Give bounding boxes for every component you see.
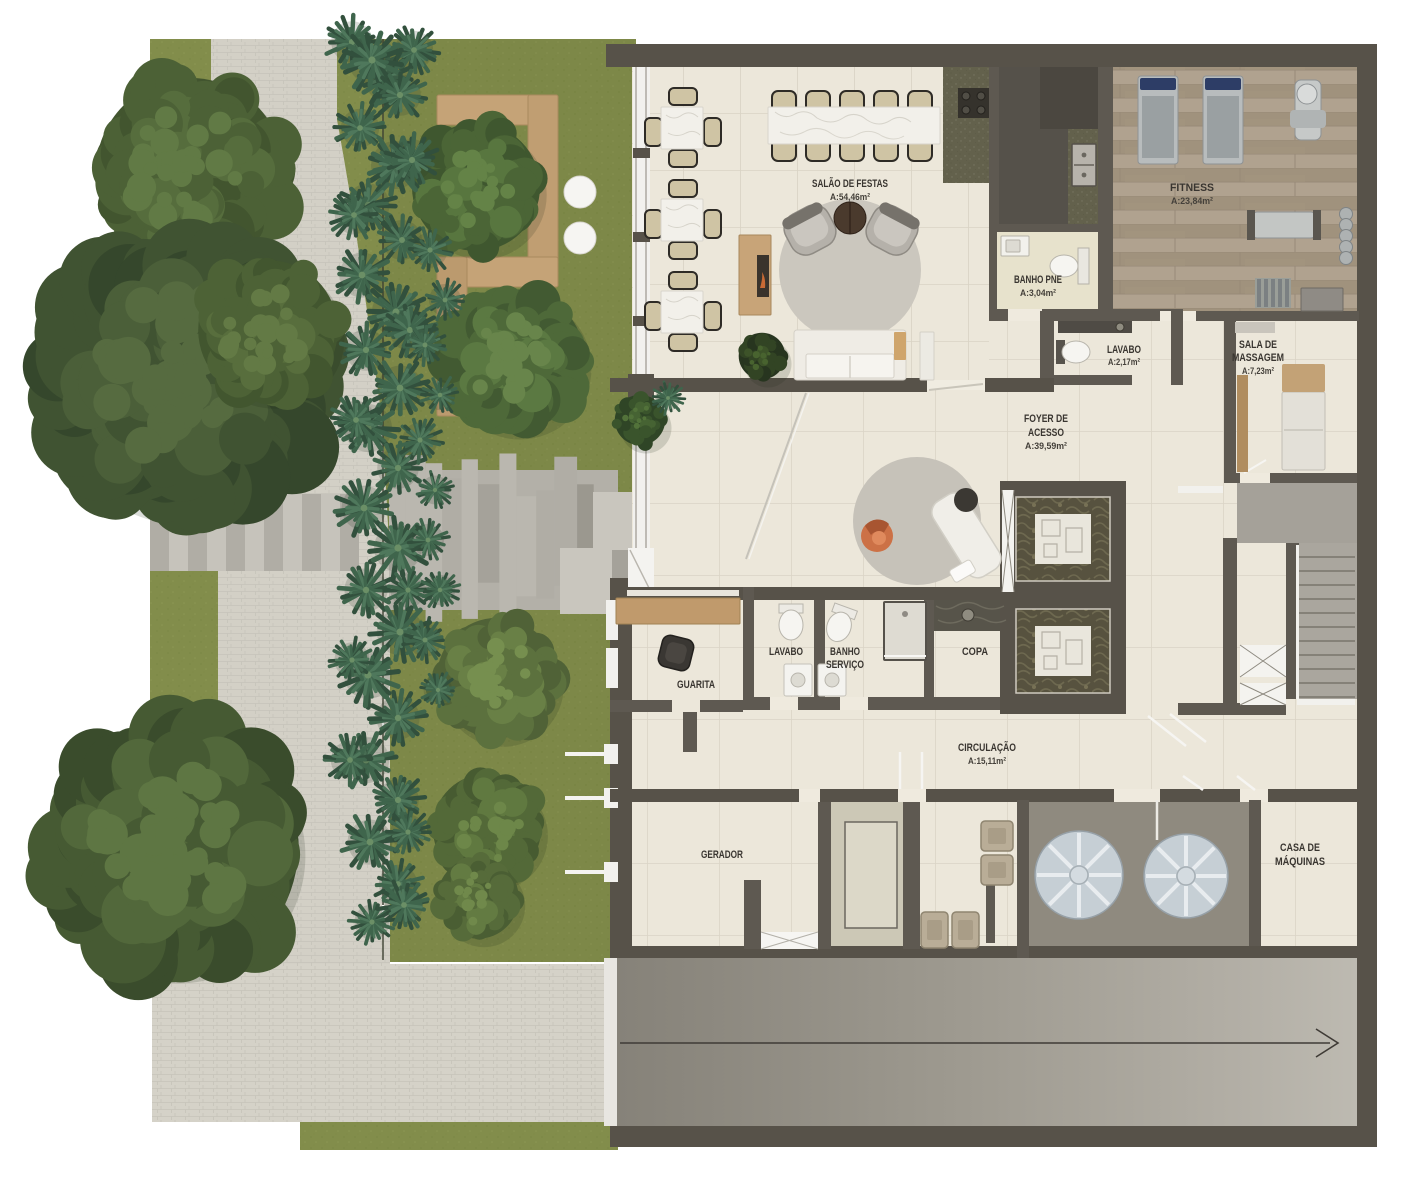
svg-text:FOYER DE: FOYER DE [1024,413,1068,425]
svg-text:COPA: COPA [962,646,988,658]
svg-text:SALÃO DE FESTAS: SALÃO DE FESTAS [812,177,888,190]
svg-text:ACESSO: ACESSO [1028,427,1064,439]
svg-text:FITNESS: FITNESS [1170,182,1214,194]
svg-text:CIRCULAÇÃO: CIRCULAÇÃO [958,741,1016,754]
svg-text:LAVABO: LAVABO [1107,344,1141,356]
svg-text:SERVIÇO: SERVIÇO [826,659,864,671]
svg-text:GUARITA: GUARITA [677,679,715,691]
svg-text:CASA DE: CASA DE [1280,842,1320,854]
svg-text:A:15,11m²: A:15,11m² [968,756,1006,767]
svg-text:LAVABO: LAVABO [769,646,803,658]
svg-text:BANHO PNE: BANHO PNE [1014,274,1062,286]
svg-text:SALA DE: SALA DE [1239,339,1277,351]
svg-text:MÁQUINAS: MÁQUINAS [1275,855,1325,868]
svg-text:A:23,84m²: A:23,84m² [1171,196,1213,207]
svg-text:BANHO: BANHO [830,646,860,658]
svg-text:A:3,04m²: A:3,04m² [1020,288,1056,299]
svg-text:MASSAGEM: MASSAGEM [1232,352,1284,364]
svg-text:A:2,17m²: A:2,17m² [1108,357,1140,368]
svg-text:A:54,46m²: A:54,46m² [830,192,870,203]
svg-text:A:39,59m²: A:39,59m² [1025,441,1067,452]
svg-text:GERADOR: GERADOR [701,849,743,861]
svg-text:A:7,23m²: A:7,23m² [1242,366,1274,377]
